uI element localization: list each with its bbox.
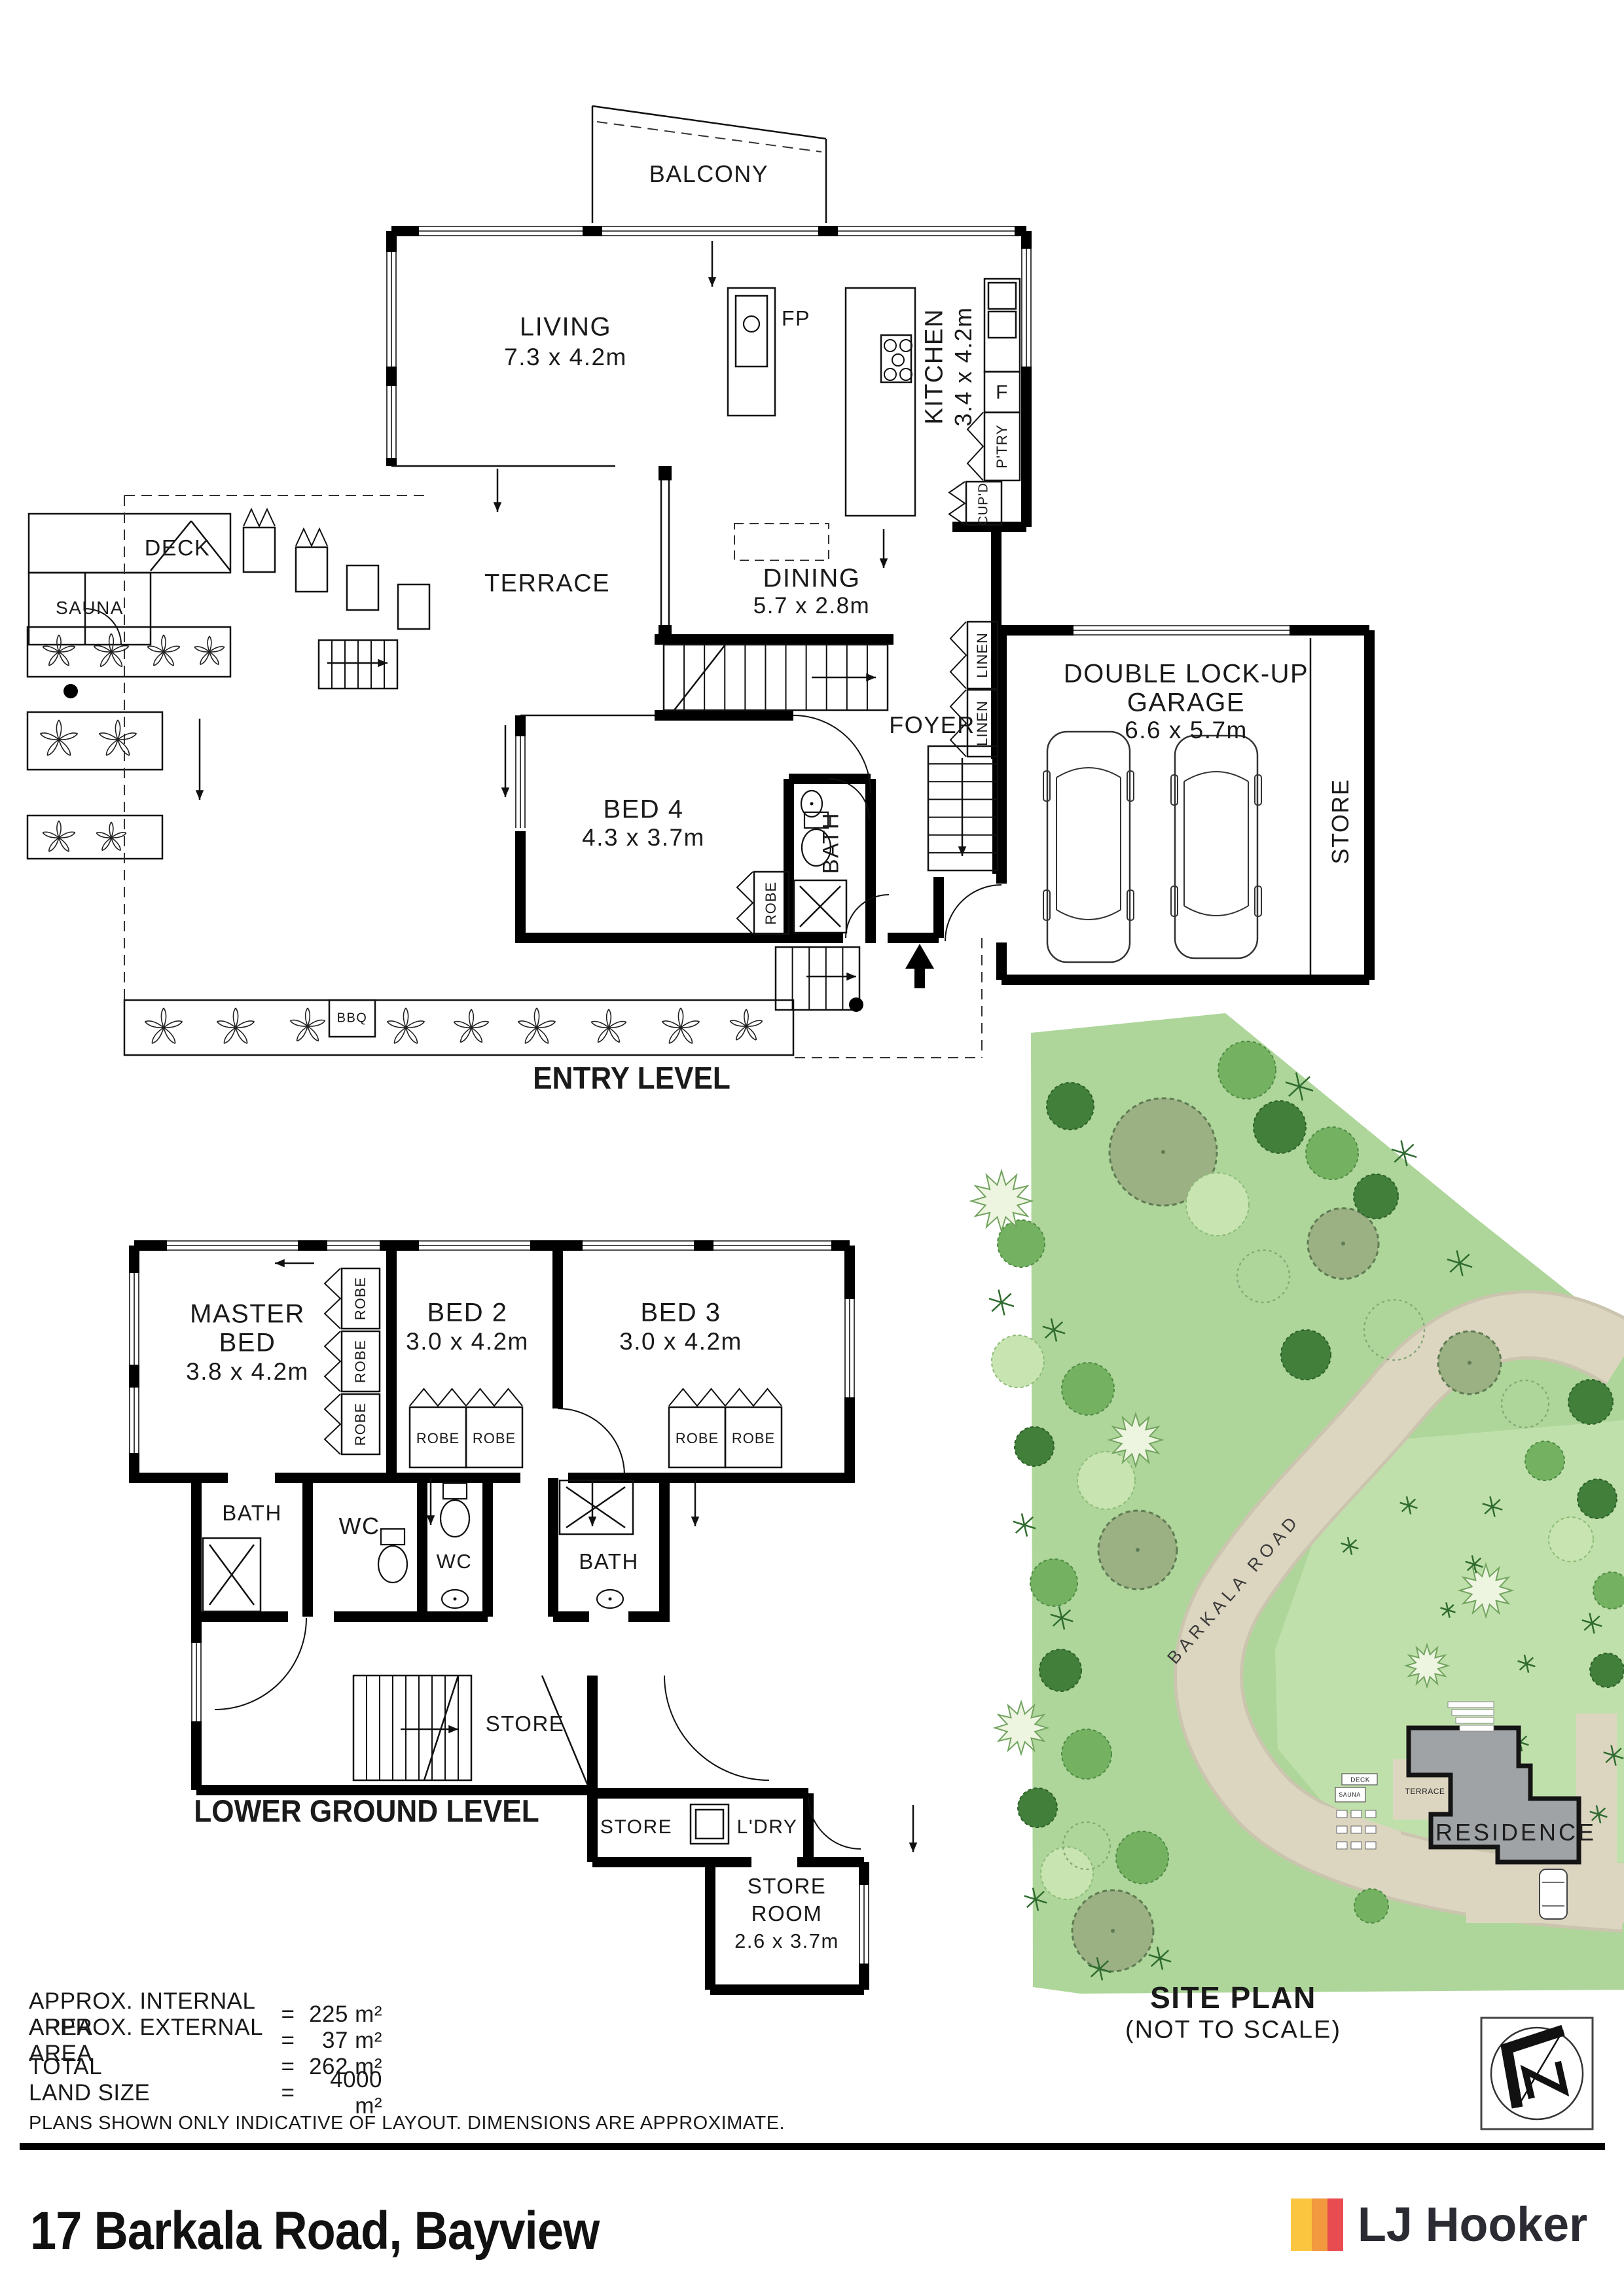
- tree-icon: [1590, 1653, 1624, 1687]
- direction-arrow: [880, 558, 888, 568]
- plant-icon: [115, 720, 118, 740]
- bed4-dims: 4.3 x 3.7m: [582, 824, 705, 852]
- plant-icon: [118, 740, 130, 755]
- site-planter-box: [1337, 1810, 1347, 1818]
- deck-label: DECK: [145, 536, 210, 562]
- cooktop-icon: [900, 368, 912, 380]
- basin-icon: [810, 802, 814, 806]
- entry-arrow: [905, 944, 934, 988]
- plant-icon: [111, 634, 113, 652]
- kitchen-dims: 3.4 x 4.2m: [950, 306, 977, 426]
- site-plan-drawing: [971, 1013, 1624, 1994]
- tree-icon: [1116, 1831, 1168, 1884]
- plant-icon: [736, 1026, 746, 1040]
- store-room-label-2: ROOM: [751, 1901, 823, 1926]
- direction-arrow: [866, 673, 876, 681]
- plant-icon: [744, 1009, 746, 1026]
- plant-icon: [200, 652, 209, 664]
- disclaimer-text: PLANS SHOWN ONLY INDICATIVE OF LAYOUT. D…: [29, 2113, 785, 2134]
- plant-icon: [59, 740, 71, 755]
- plant-icon: [164, 652, 173, 666]
- bifold-door-icon: [669, 1389, 725, 1406]
- wc1-label: WC: [339, 1513, 380, 1540]
- plant-icon: [1348, 1545, 1352, 1548]
- car-icon: [1171, 736, 1261, 958]
- site-sauna-label: SAUNA: [1339, 1791, 1361, 1798]
- plant-icon: [609, 1028, 619, 1043]
- plant-icon: [106, 740, 118, 755]
- linen-label-2: LINEN: [974, 700, 991, 746]
- plant-icon: [1024, 1525, 1027, 1537]
- bifold-door-icon: [325, 1394, 340, 1454]
- door-swing: [664, 1676, 769, 1780]
- plant-icon: [1404, 1144, 1414, 1153]
- area-value: 37 m²: [304, 2028, 382, 2054]
- site-plan-title: SITE PLAN: [1150, 1980, 1316, 2015]
- toilet-icon: [381, 1529, 405, 1545]
- area-row-landsize: LAND SIZE = 4000 m²: [29, 2080, 382, 2106]
- wc2-label: WC: [437, 1550, 473, 1573]
- wall-cap: [659, 466, 672, 480]
- plant-icon: [681, 1028, 693, 1043]
- site-car-icon: [1540, 1869, 1567, 1919]
- plant-icon: [1401, 1140, 1404, 1153]
- robe-label-h3: ROBE: [676, 1430, 719, 1447]
- tree-icon: [1136, 1548, 1140, 1552]
- plant-icon: [1597, 1813, 1600, 1816]
- dining-dims: 5.7 x 2.8m: [753, 593, 870, 619]
- plant-icon: [111, 652, 122, 667]
- site-car-icon: [1540, 1869, 1567, 1919]
- plant-icon: [109, 634, 111, 652]
- living-dims: 7.3 x 4.2m: [504, 344, 627, 371]
- entry-level-title: ENTRY LEVEL: [533, 1061, 731, 1097]
- store-small-label: STORE: [600, 1816, 672, 1839]
- plant-icon: [607, 1009, 609, 1028]
- linen-label-1: LINEN: [974, 632, 991, 678]
- plant-icon: [1525, 1662, 1528, 1666]
- area-summary: APPROX. INTERNAL AREA = 225 m² APPROX. E…: [29, 2001, 382, 2106]
- toilet-icon: [378, 1546, 407, 1583]
- plant-icon: [992, 1302, 1001, 1312]
- plant-icon: [236, 1008, 238, 1028]
- bifold-door-icon: [325, 1268, 340, 1329]
- plant-icon: [154, 652, 164, 666]
- north-arrow-icon: [1481, 2018, 1593, 2129]
- car-icon: [1175, 736, 1257, 958]
- plant-icon: [678, 1008, 681, 1028]
- store-stairs-label: STORE: [486, 1712, 565, 1736]
- tree-icon: [998, 1220, 1045, 1267]
- plant-icon: [1298, 1085, 1301, 1088]
- plant-icon: [469, 1009, 471, 1028]
- tree-icon: [1062, 1729, 1111, 1779]
- plant-icon: [236, 1028, 247, 1043]
- area-eq: =: [272, 2028, 304, 2054]
- bed3-dims: 3.0 x 4.2m: [619, 1328, 742, 1355]
- plant-icon: [59, 652, 69, 666]
- plant-icon: [164, 1008, 166, 1028]
- plant-icon: [308, 1026, 318, 1041]
- plant-icon: [200, 652, 209, 664]
- cooktop-icon: [900, 340, 912, 351]
- area-value: 225 m²: [304, 2001, 382, 2028]
- door-swing: [808, 1797, 861, 1849]
- plant-icon: [394, 1028, 406, 1043]
- joinery: [846, 288, 915, 516]
- site-planter-box: [1351, 1826, 1362, 1833]
- plant-icon: [609, 1028, 619, 1043]
- car-icon: [1043, 732, 1134, 962]
- basin-icon: [609, 1598, 612, 1601]
- plant-icon: [308, 1008, 310, 1026]
- plan-dot: [849, 997, 863, 1012]
- bifold-door-icon: [949, 482, 965, 525]
- plant-icon: [102, 838, 111, 850]
- direction-arrow: [196, 790, 204, 800]
- direction-arrow: [275, 1259, 285, 1267]
- bifold-door-icon: [410, 1389, 466, 1406]
- robe-label-v3: ROBE: [352, 1403, 369, 1446]
- site-planter-box: [1337, 1842, 1347, 1849]
- area-eq: =: [272, 2054, 304, 2080]
- garage-label-line1: DOUBLE LOCK-UP: [1064, 660, 1308, 689]
- tree-icon: [1111, 1929, 1115, 1933]
- living-label: LIVING: [520, 313, 611, 342]
- direction-arrow: [909, 1842, 917, 1852]
- plant-icon: [1034, 1898, 1038, 1901]
- garage-store-label: STORE: [1327, 779, 1354, 865]
- plant-icon: [681, 1008, 683, 1028]
- plant-icon: [162, 635, 164, 652]
- plant-icon: [59, 652, 69, 666]
- dining-table-dashed: [734, 524, 829, 560]
- site-terrace-label: TERRACE: [1405, 1787, 1445, 1796]
- plant-icon: [1612, 1754, 1615, 1757]
- plant-icon: [609, 1009, 611, 1028]
- tree-icon: [1354, 1889, 1388, 1923]
- plant-icon: [109, 822, 111, 838]
- plant-icon: [461, 1028, 471, 1043]
- foyer-label: FOYER: [889, 711, 975, 739]
- plant-icon: [59, 740, 71, 755]
- tree-icon: [1468, 1361, 1471, 1365]
- plant-icon: [47, 740, 59, 755]
- plant-icon: [669, 1028, 681, 1043]
- plant-icon: [236, 1028, 247, 1043]
- plant-icon: [49, 652, 59, 666]
- plant-icon: [56, 720, 59, 740]
- logo-stripe-red: [1327, 2198, 1343, 2251]
- plant-icon: [1000, 1301, 1003, 1304]
- fridge-label: F: [996, 382, 1009, 404]
- plant-icon: [164, 1028, 175, 1043]
- direction-arrow: [958, 846, 966, 856]
- site-steps: [1448, 1702, 1494, 1708]
- area-eq: =: [272, 2001, 304, 2028]
- plant-icon: [1458, 1262, 1462, 1265]
- plant-icon: [537, 1028, 549, 1043]
- plant-icon: [59, 821, 61, 838]
- garage-label-line2: GARAGE: [1127, 689, 1245, 718]
- logo-stripe-orange: [1312, 2198, 1327, 2251]
- robe-label-v2: ROBE: [352, 1340, 369, 1383]
- kitchen-label: KITCHEN: [921, 308, 949, 424]
- site-planter-box: [1351, 1842, 1362, 1849]
- entry-bath-label: BATH: [819, 812, 844, 874]
- plant-icon: [681, 1028, 693, 1043]
- direction-arrow: [427, 1515, 435, 1525]
- plant-icon: [1022, 1513, 1024, 1525]
- door-swing: [558, 1408, 624, 1475]
- plant-icon: [297, 1026, 308, 1041]
- direction-arrow: [378, 659, 388, 667]
- plant-icon: [534, 1008, 537, 1028]
- plant-icon: [1060, 1617, 1064, 1620]
- joinery: [988, 283, 1016, 309]
- plant-icon: [1023, 1524, 1026, 1527]
- tree-icon: [1186, 1173, 1249, 1236]
- pantry-label: P'TRY: [994, 424, 1011, 468]
- robe-label-v1: ROBE: [352, 1277, 369, 1320]
- plant-icon: [746, 1026, 756, 1040]
- fireplace-label: FP: [782, 307, 810, 331]
- area-label: TOTAL: [29, 2054, 272, 2080]
- plant-icon: [471, 1028, 482, 1043]
- plant-icon: [471, 1009, 473, 1028]
- tree-icon: [1281, 1330, 1331, 1380]
- door-swing: [945, 885, 1001, 941]
- plant-icon: [111, 838, 120, 850]
- tree-icon: [1077, 1452, 1135, 1509]
- plant-icon: [224, 1028, 236, 1043]
- bifold-door-icon: [737, 872, 753, 934]
- plant-icon: [1098, 1967, 1102, 1971]
- plant-icon: [1001, 1302, 1014, 1306]
- plant-icon: [164, 635, 166, 652]
- laundry-label: L'DRY: [737, 1816, 798, 1839]
- floorplan-sheet: BALCONY LIVING 7.3 x 4.2m FP KITCHEN 3.4…: [0, 0, 1624, 2296]
- site-steps: [1460, 1725, 1494, 1731]
- ljhooker-logo-text: LJ Hooker: [1358, 2197, 1587, 2252]
- site-path: [1576, 1713, 1617, 1872]
- plant-icon: [118, 720, 120, 740]
- direction-arrow: [708, 277, 716, 287]
- tree-icon: [1039, 1649, 1081, 1691]
- plant-icon: [1159, 1957, 1162, 1960]
- plant-icon: [154, 652, 164, 666]
- plant-icon: [59, 635, 61, 652]
- fireplace-icon: [744, 316, 759, 332]
- plant-icon: [49, 838, 59, 852]
- joinery: [696, 1810, 723, 1839]
- plant-icon: [111, 652, 122, 667]
- plant-icon: [306, 1008, 308, 1026]
- plant-icon: [1403, 1152, 1406, 1155]
- tree-icon: [1341, 1242, 1345, 1246]
- plant-icon: [1407, 1504, 1411, 1507]
- sauna-label: SAUNA: [56, 598, 124, 619]
- plant-icon: [1053, 1329, 1056, 1332]
- plant-icon: [1016, 1525, 1024, 1533]
- tree-icon: [1018, 1788, 1057, 1827]
- plant-icon: [59, 720, 62, 740]
- direction-arrow: [501, 787, 509, 797]
- plant-icon: [57, 635, 59, 652]
- joinery: [27, 712, 162, 770]
- plant-icon: [1001, 1302, 1004, 1316]
- plan-line: [592, 106, 826, 139]
- robe-label-h4: ROBE: [732, 1430, 775, 1447]
- lower-bath-left-label: BATH: [222, 1501, 282, 1526]
- joinery: [988, 312, 1016, 338]
- basin-icon: [454, 1598, 457, 1601]
- plant-icon: [598, 1028, 609, 1043]
- plant-icon: [1591, 1622, 1594, 1625]
- site-planter-box: [1351, 1810, 1362, 1818]
- tree-icon: [1568, 1380, 1613, 1424]
- joinery: [398, 584, 429, 629]
- ljhooker-logo: LJ Hooker: [1291, 2197, 1595, 2252]
- plant-icon: [118, 740, 130, 755]
- site-steps: [1456, 1717, 1494, 1723]
- plant-icon: [164, 652, 173, 666]
- site-planter-box: [1337, 1826, 1347, 1833]
- joinery: [296, 547, 327, 592]
- plant-icon: [525, 1028, 537, 1043]
- lower-ground-title: LOWER GROUND LEVEL: [194, 1794, 539, 1830]
- plant-icon: [209, 652, 219, 664]
- direction-arrow: [494, 502, 501, 512]
- plant-icon: [746, 1009, 748, 1026]
- tree-icon: [992, 1335, 1044, 1388]
- plant-icon: [537, 1008, 539, 1028]
- plant-icon: [736, 1026, 746, 1040]
- direction-arrow: [588, 1516, 596, 1526]
- site-plan-subtitle: (NOT TO SCALE): [1125, 2017, 1341, 2045]
- area-row-external: APPROX. EXTERNAL AREA = 37 m²: [29, 2028, 382, 2054]
- plant-icon: [164, 1028, 175, 1043]
- plant-icon: [101, 652, 111, 667]
- plant-icon: [1473, 1563, 1476, 1566]
- bifold-door-icon: [244, 509, 275, 526]
- toilet-icon: [443, 1483, 467, 1499]
- tree-icon: [1306, 1127, 1358, 1179]
- master-bed-dims: 3.8 x 4.2m: [186, 1358, 309, 1386]
- plant-icon: [669, 1028, 681, 1043]
- plant-icon: [1013, 1522, 1024, 1525]
- plant-icon: [49, 652, 59, 666]
- direction-arrow: [691, 1516, 699, 1526]
- car-icon: [1047, 732, 1130, 962]
- plant-icon: [161, 1008, 164, 1028]
- bed2-label: BED 2: [427, 1299, 507, 1328]
- plant-icon: [394, 1028, 406, 1043]
- bed3-label: BED 3: [640, 1299, 721, 1328]
- plant-icon: [598, 1028, 609, 1043]
- logo-stripe-yellow: [1291, 2198, 1312, 2251]
- cooktop-icon: [884, 340, 896, 351]
- tree-icon: [1549, 1517, 1593, 1562]
- plant-icon: [1447, 1609, 1450, 1612]
- lower-bath-right-label: BATH: [579, 1549, 639, 1574]
- plant-icon: [208, 636, 209, 652]
- site-planter-box: [1365, 1810, 1376, 1818]
- plant-icon: [59, 838, 69, 852]
- plant-icon: [406, 1028, 418, 1043]
- plant-icon: [152, 1028, 164, 1043]
- tree-icon: [1015, 1427, 1054, 1466]
- plant-icon: [49, 838, 59, 852]
- bed4-robe-label: ROBE: [763, 882, 780, 925]
- plant-icon: [47, 740, 59, 755]
- garage-dims: 6.6 x 5.7m: [1125, 717, 1248, 744]
- plan-dot: [63, 684, 78, 698]
- plant-icon: [1001, 1293, 1011, 1302]
- tree-icon: [1062, 1363, 1114, 1415]
- area-value: 4000 m²: [304, 2067, 382, 2119]
- area-label: LAND SIZE: [29, 2080, 272, 2106]
- plant-icon: [224, 1028, 236, 1043]
- cooktop-icon: [884, 368, 896, 380]
- area-eq: =: [272, 2080, 304, 2106]
- plant-icon: [403, 1008, 406, 1028]
- direction-arrow: [448, 1725, 458, 1733]
- bifold-door-icon: [325, 1331, 340, 1391]
- plant-icon: [471, 1028, 482, 1043]
- plant-icon: [1404, 1153, 1416, 1157]
- plant-icon: [102, 838, 111, 850]
- direction-arrow: [846, 973, 856, 980]
- plant-icon: [59, 838, 69, 852]
- tree-icon: [1047, 1083, 1094, 1130]
- plant-icon: [1024, 1517, 1033, 1525]
- residence-label: RESIDENCE: [1435, 1819, 1597, 1846]
- plant-icon: [57, 821, 59, 838]
- plant-icon: [989, 1299, 1001, 1302]
- joinery: [347, 565, 378, 610]
- plant-icon: [461, 1028, 471, 1043]
- plant-icon: [525, 1028, 537, 1043]
- tree-icon: [1218, 1041, 1276, 1099]
- dashed-line: [597, 122, 821, 152]
- door-swing: [215, 1618, 306, 1710]
- robe-label-h2: ROBE: [473, 1430, 516, 1447]
- tree-icon: [1593, 1572, 1624, 1609]
- plant-icon: [746, 1026, 756, 1040]
- store-room-label-1: STORE: [748, 1874, 827, 1899]
- ljhooker-logo-icon: [1291, 2198, 1343, 2251]
- tree-icon: [1525, 1441, 1564, 1480]
- site-deck-label: DECK: [1350, 1777, 1370, 1784]
- property-address: 17 Barkala Road, Bayview: [30, 2200, 599, 2262]
- bifold-door-icon: [725, 1389, 782, 1406]
- joinery: [124, 1000, 793, 1055]
- site-planter-box: [1365, 1842, 1376, 1849]
- plant-icon: [1491, 1505, 1494, 1509]
- tree-icon: [1041, 1847, 1093, 1899]
- bifold-door-icon: [466, 1389, 522, 1406]
- plant-icon: [152, 1028, 164, 1043]
- plant-icon: [233, 1008, 236, 1028]
- toilet-icon: [441, 1500, 469, 1537]
- plant-icon: [297, 1026, 308, 1041]
- plant-icon: [406, 1028, 418, 1043]
- plant-icon: [308, 1026, 318, 1041]
- joinery: [27, 816, 162, 859]
- joinery: [984, 279, 1020, 372]
- stairs-break: [674, 645, 725, 710]
